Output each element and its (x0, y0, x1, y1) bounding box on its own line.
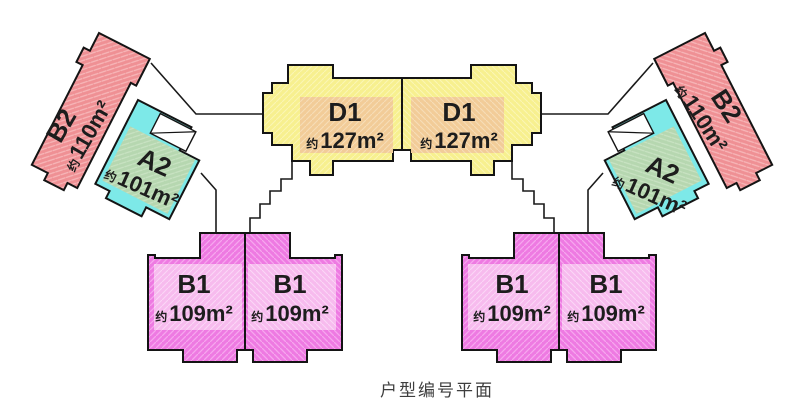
svg-text:B1: B1 (177, 269, 210, 299)
floorplan-canvas: B2 约110m² B2 约110m² A2 约101m² A2 约101m² … (0, 0, 800, 410)
svg-text:B1: B1 (495, 269, 528, 299)
svg-text:D1: D1 (442, 97, 475, 127)
svg-text:D1: D1 (328, 97, 361, 127)
svg-text:B1: B1 (589, 269, 622, 299)
plan-caption: 户型编号平面 (380, 381, 494, 400)
floorplan-page: B2 约110m² B2 约110m² A2 约101m² A2 约101m² … (0, 0, 800, 410)
svg-text:B1: B1 (273, 269, 306, 299)
